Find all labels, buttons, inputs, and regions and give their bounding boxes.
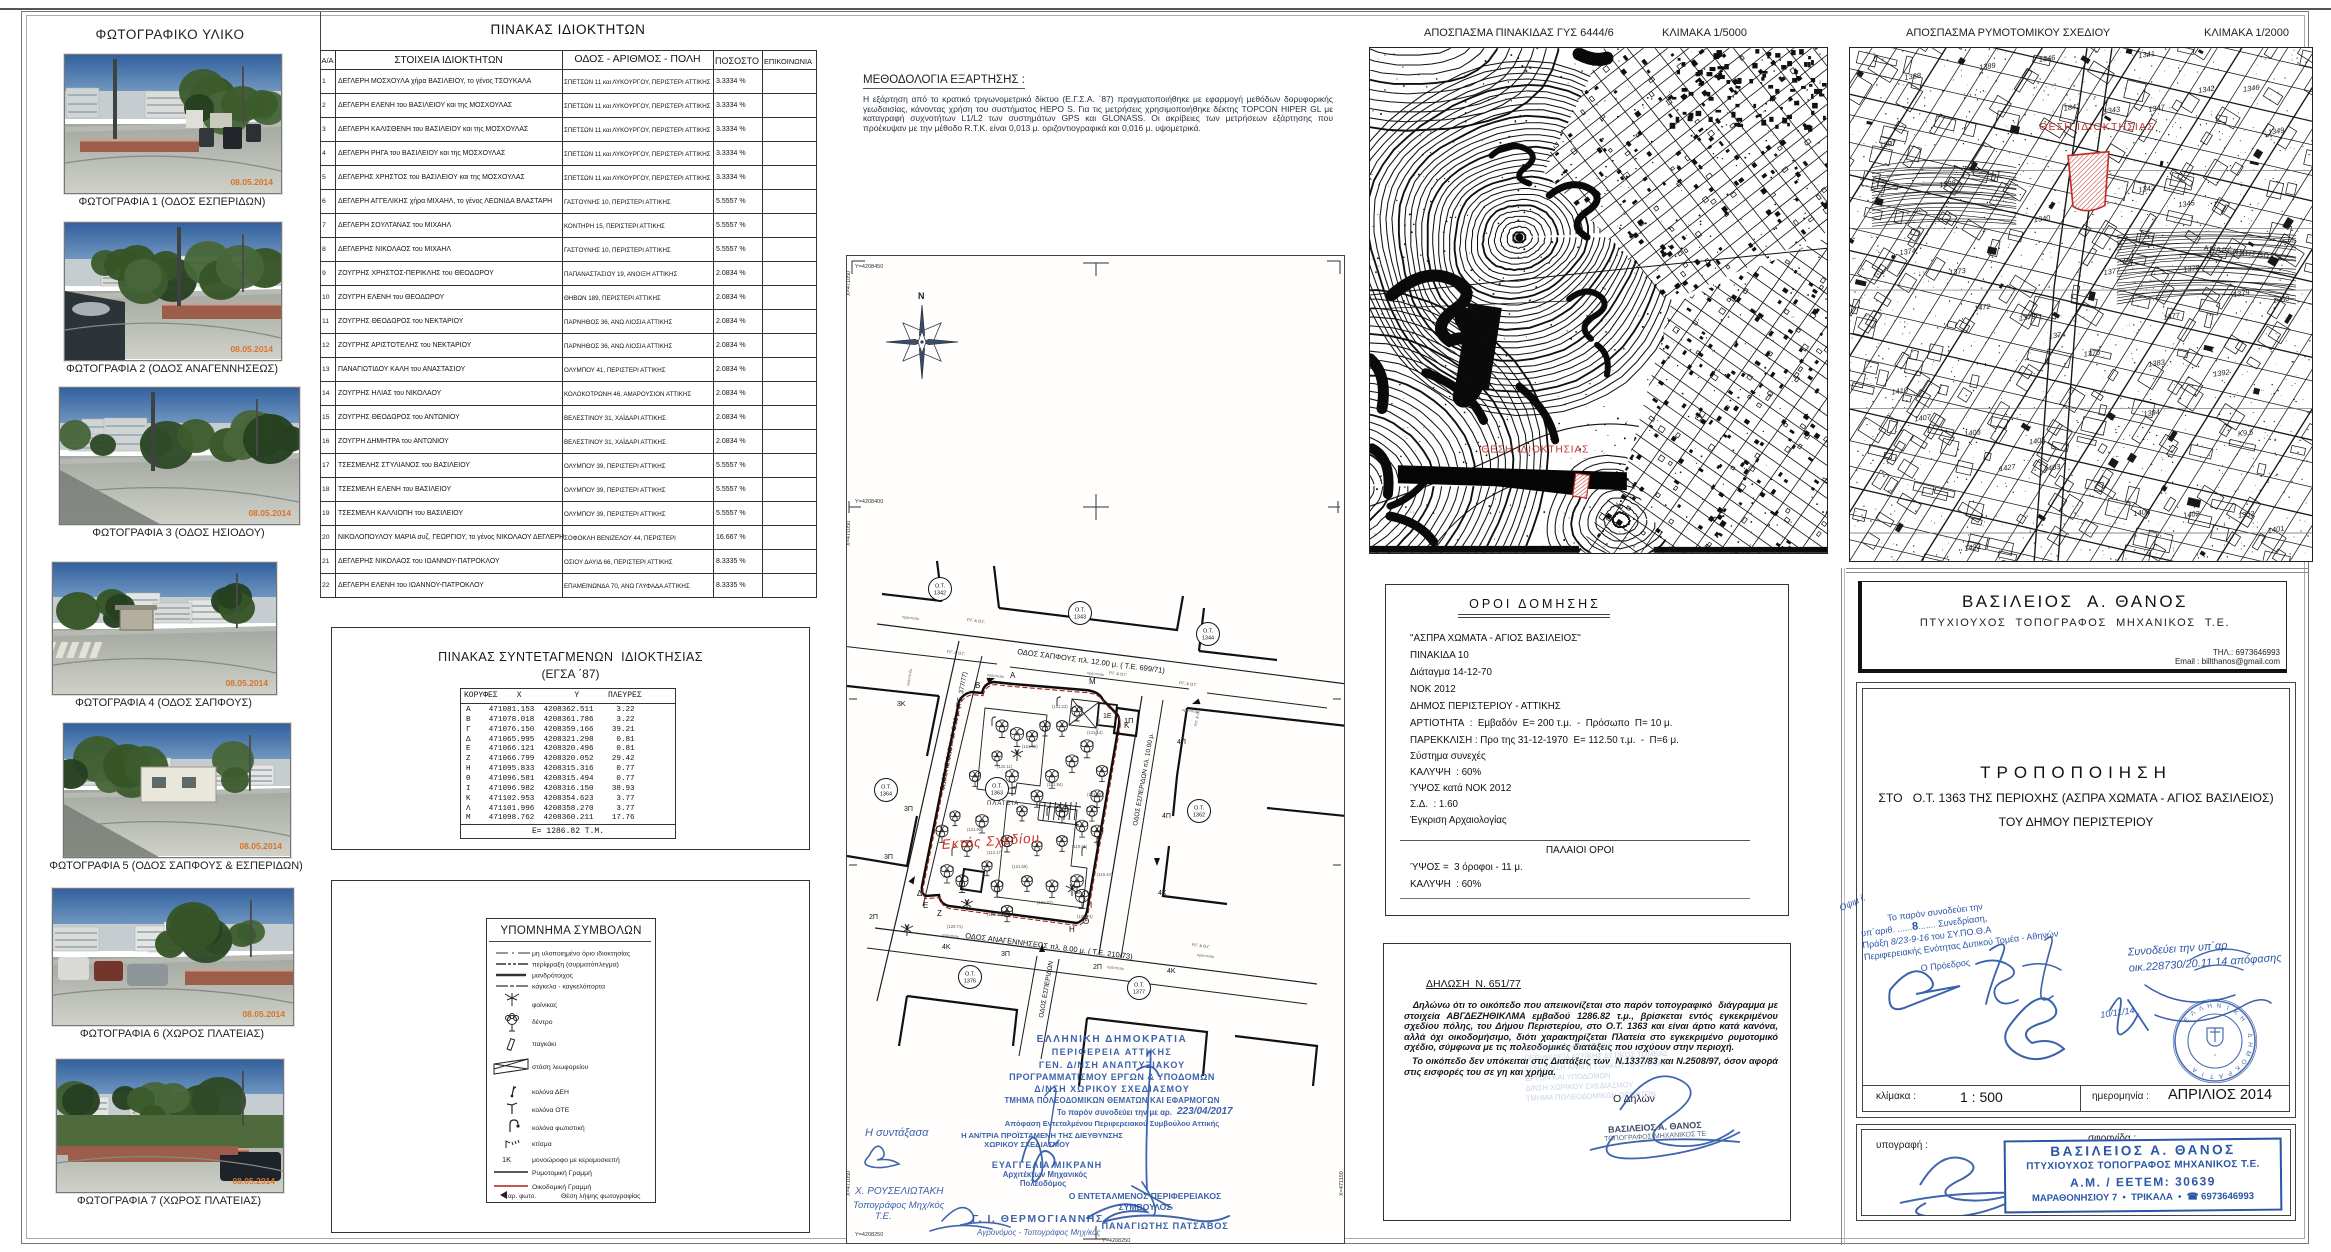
svg-text:1402: 1402 <box>2183 509 2202 520</box>
svg-text:1Κ: 1Κ <box>502 1155 511 1164</box>
svg-text:Ο.Τ.: Ο.Τ. <box>935 584 946 590</box>
svg-text:1364: 1364 <box>880 792 892 798</box>
svg-text:2Π: 2Π <box>869 914 878 921</box>
svg-text:κολόνα ΔΕΗ: κολόνα ΔΕΗ <box>532 1088 569 1096</box>
svg-text:Η: Η <box>1069 925 1075 934</box>
svg-text:1342: 1342 <box>934 591 946 597</box>
svg-text:1377: 1377 <box>1133 990 1145 996</box>
svg-text:1374: 1374 <box>2048 330 2066 341</box>
svg-text:Ρ.Γ. & Ο.Γ.: Ρ.Γ. & Ο.Γ. <box>1109 670 1128 677</box>
svg-text:Τοπογράφος Μηχ/κός: Τοπογράφος Μηχ/κός <box>853 1200 945 1211</box>
svg-text:Ρ.Γ. & Ο.Γ.: Ρ.Γ. & Ο.Γ. <box>967 617 986 624</box>
svg-text:1347: 1347 <box>2148 102 2167 113</box>
svg-text:(121.58): (121.58) <box>1012 864 1028 869</box>
svg-text:Κ: Κ <box>2233 1064 2241 1073</box>
svg-text:4Π: 4Π <box>1177 739 1186 746</box>
svg-text:4Π: 4Π <box>1162 813 1171 820</box>
svg-text:1405: 1405 <box>2028 435 2047 446</box>
svg-text:1377: 1377 <box>2163 311 2182 322</box>
svg-text:ΟΔΟΣ ΕΣΠΕΡΙΔΩΝ: ΟΔΟΣ ΕΣΠΕΡΙΔΩΝ <box>1038 960 1055 1018</box>
svg-text:Χ. ΡΟΥΣΕΛΙΩΤΑΚΗ: Χ. ΡΟΥΣΕΛΙΩΤΑΚΗ <box>854 1186 944 1197</box>
svg-text:(119.44): (119.44) <box>1097 872 1113 877</box>
svg-text:(121.22): (121.22) <box>1052 704 1068 709</box>
svg-text:κάγκελα - καγκελόπορτα: κάγκελα - καγκελόπορτα <box>532 983 605 991</box>
svg-text:08.05.2014: 08.05.2014 <box>248 508 291 518</box>
svg-text:ΓΕΝ. Δ/ΝΣΗ ΑΝΑΠΤΥΞΙΑΚΟΥ: ΓΕΝ. Δ/ΝΣΗ ΑΝΑΠΤΥΞΙΑΚΟΥ <box>1039 1060 1185 1070</box>
svg-text:(121.22): (121.22) <box>987 912 1003 917</box>
svg-text:08.05.2014: 08.05.2014 <box>239 841 282 851</box>
svg-text:κράσπεδο: κράσπεδο <box>906 669 913 687</box>
svg-text:(121.09): (121.09) <box>1022 744 1038 749</box>
svg-text:μη υλοποιημένο όριο ιδιοκτησία: μη υλοποιημένο όριο ιδιοκτησίας <box>532 950 631 958</box>
svg-text:X=471150: X=471150 <box>1339 1171 1344 1196</box>
svg-text:Y=4208250: Y=4208250 <box>855 1232 883 1238</box>
svg-text:1380: 1380 <box>2272 294 2291 305</box>
svg-text:Η: Η <box>2207 1003 2213 1011</box>
svg-text:3Κ: 3Κ <box>897 701 906 708</box>
svg-text:μανδρότοιχος: μανδρότοιχος <box>532 972 574 980</box>
svg-text:ΠΡΟΓΡΑΜΜΑΤΙΣΜΟΥ ΕΡΓΩΝ & ΥΠΟΔΟΜ: ΠΡΟΓΡΑΜΜΑΤΙΣΜΟΥ ΕΡΓΩΝ & ΥΠΟΔΟΜΩΝ <box>1009 1072 1215 1082</box>
svg-text:δέντρο: δέντρο <box>532 1018 553 1026</box>
svg-text:1422: 1422 <box>1964 542 1983 553</box>
svg-text:Μ: Μ <box>2244 1050 2252 1058</box>
svg-text:Η: Η <box>2238 1015 2247 1023</box>
svg-text:ΤΜΗΜΑ ΠΟΛΕΟΔΟΜΙΚΩΝ ΘΕΜΑΤΩΝ ΚΑΙ: ΤΜΗΜΑ ΠΟΛΕΟΔΟΜΙΚΩΝ ΘΕΜΑΤΩΝ ΚΑΙ ΕΦΑΡΜΟΓΩΝ <box>1004 1096 1219 1105</box>
svg-text:ΟΔΟΣ ΑΝΑΓΕΝΝΗΣΕΩΣ πλ. 8.00 μ.: ΟΔΟΣ ΑΝΑΓΕΝΝΗΣΕΩΣ πλ. 8.00 μ. ( Τ.Ε. 210… <box>965 931 1134 961</box>
svg-text:1388: 1388 <box>1904 71 1923 82</box>
svg-text:Θέση λήψης φωτογραφίας: Θέση λήψης φωτογραφίας <box>561 1192 641 1200</box>
svg-text:1346: 1346 <box>2242 83 2261 94</box>
svg-text:1392: 1392 <box>2212 367 2231 378</box>
svg-text:Ζ: Ζ <box>937 909 942 918</box>
svg-text:Η ΑΝ/ΤΡΙΑ ΠΡΟΪΣΤΑΜΕΝΗ ΤΗΣ ΔΙΕΥ: Η ΑΝ/ΤΡΙΑ ΠΡΟΪΣΤΑΜΕΝΗ ΤΗΣ ΔΙΕΥΘΥΝΣΗΣ <box>961 1131 1123 1140</box>
svg-text:Το παρόν συνοδεύει την με αρ.: Το παρόν συνοδεύει την με αρ. <box>1057 1108 1172 1117</box>
svg-text:Ι: Ι <box>1090 901 1092 910</box>
svg-text:1343: 1343 <box>2103 104 2122 115</box>
svg-text:1Ε: 1Ε <box>1103 713 1112 720</box>
svg-text:1377: 1377 <box>2103 266 2122 277</box>
svg-text:Ο.Τ.: Ο.Τ. <box>1075 608 1086 614</box>
svg-text:1400: 1400 <box>2133 507 2152 518</box>
svg-text:Ι: Ι <box>2226 1005 2230 1012</box>
svg-text:1403: 1403 <box>1964 427 1983 438</box>
svg-text:Ρ.Γ. & Ο.Γ.: Ρ.Γ. & Ο.Γ. <box>947 649 966 656</box>
svg-text:(120.71): (120.71) <box>947 924 963 929</box>
svg-text:Ρ.Γ. & Ο.Γ.: Ρ.Γ. & Ο.Γ. <box>1192 942 1211 949</box>
svg-text:Πολεοδόμος: Πολεοδόμος <box>1020 1179 1066 1188</box>
svg-text:Ε: Ε <box>923 901 928 910</box>
svg-text:(121.94): (121.94) <box>1047 782 1063 787</box>
svg-text:Ο.Τ.: Ο.Τ. <box>1194 806 1205 812</box>
svg-text:αρ. φωτο.: αρ. φωτο. <box>508 1193 536 1200</box>
svg-text:κολόνα φωτιστική: κολόνα φωτιστική <box>532 1124 585 1132</box>
svg-text:Ο: Ο <box>2239 1057 2248 1065</box>
svg-text:Ρ: Ρ <box>2226 1069 2233 1077</box>
svg-text:1379: 1379 <box>2232 288 2250 299</box>
svg-text:Η συντάξασα: Η συντάξασα <box>865 1127 929 1139</box>
svg-text:Λ: Λ <box>2198 1005 2205 1013</box>
svg-text:1376: 1376 <box>964 979 976 985</box>
svg-text:X=471050: X=471050 <box>847 271 852 296</box>
svg-text:Κ9.5: Κ9.5 <box>2237 427 2254 438</box>
svg-text:Ο.Τ.: Ο.Τ. <box>881 785 892 791</box>
svg-text:N: N <box>918 291 925 301</box>
svg-text:(122.11): (122.11) <box>997 764 1013 769</box>
svg-text:1343: 1343 <box>1074 615 1086 621</box>
svg-text:1345: 1345 <box>2178 198 2197 209</box>
svg-text:(112.17): (112.17) <box>987 850 1003 855</box>
svg-text:1362: 1362 <box>1193 813 1205 819</box>
svg-text:1389: 1389 <box>1978 61 1996 72</box>
svg-text:08.05.2014: 08.05.2014 <box>225 678 268 688</box>
svg-text:1341: 1341 <box>2138 49 2156 60</box>
svg-text:1427: 1427 <box>1998 462 2017 473</box>
svg-text:ΕΥΑΓΓΕΛΙΑ ΜΙΚΡΑΝΗ: ΕΥΑΓΓΕΛΙΑ ΜΙΚΡΑΝΗ <box>992 1160 1102 1170</box>
svg-text:1378: 1378 <box>2183 263 2202 274</box>
svg-text:08.05.2014: 08.05.2014 <box>230 344 273 354</box>
svg-text:223/04/2017: 223/04/2017 <box>1176 1106 1233 1117</box>
svg-text:1472: 1472 <box>1973 302 1992 313</box>
svg-text:περίφραξη (συρματόπλεγμα): περίφραξη (συρματόπλεγμα) <box>532 961 619 969</box>
svg-text:ΠΑΝΑΓΙΩΤΗΣ ΠΑΤΣΑΒΟΣ: ΠΑΝΑΓΙΩΤΗΣ ΠΑΤΣΑΒΟΣ <box>1101 1221 1228 1231</box>
svg-text:παγκάκι: παγκάκι <box>532 1040 557 1048</box>
svg-text:ΠΛΑΤΕΙΑ: ΠΛΑΤΕΙΑ <box>987 801 1019 807</box>
svg-text:Μ: Μ <box>1089 677 1096 686</box>
svg-text:μονοώροφο με κεραμοσκεπή: μονοώροφο με κεραμοσκεπή <box>532 1156 620 1164</box>
svg-text:1344: 1344 <box>1202 636 1214 642</box>
svg-text:Y=4208250: Y=4208250 <box>1102 1238 1130 1243</box>
svg-text:Εκτός Σχεδίου: Εκτός Σχεδίου <box>941 830 1040 852</box>
svg-text:Y=4208450: Y=4208450 <box>855 264 883 270</box>
svg-text:Απόφαση Εντεταλμένου Περιφερει: Απόφαση Εντεταλμένου Περιφερειακού Συμβο… <box>1005 1119 1220 1128</box>
svg-text:φοίνικας: φοίνικας <box>532 1001 558 1009</box>
svg-text:(119.91): (119.91) <box>1072 844 1088 849</box>
svg-text:Η: Η <box>2246 1042 2253 1048</box>
svg-text:1394: 1394 <box>2143 407 2161 418</box>
svg-text:08.05.2014: 08.05.2014 <box>242 1009 285 1019</box>
svg-text:08.05.2014: 08.05.2014 <box>230 177 273 187</box>
svg-text:κράσπεδο: κράσπεδο <box>1197 953 1215 959</box>
svg-text:08.05.2014: 08.05.2014 <box>232 1176 275 1186</box>
svg-text:1407: 1407 <box>1914 412 1933 423</box>
svg-text:3Π: 3Π <box>904 806 913 813</box>
svg-text:Ο.Τ.: Ο.Τ. <box>965 972 976 978</box>
svg-text:Ο.Τ.: Ο.Τ. <box>1203 629 1214 635</box>
svg-text:Β: Β <box>975 681 980 690</box>
svg-text:Αρχιτέκτων Μηχανικός: Αρχιτέκτων Μηχανικός <box>1003 1170 1087 1179</box>
svg-text:κτίσμα: κτίσμα <box>532 1140 552 1148</box>
svg-text:Κ: Κ <box>2232 1009 2240 1018</box>
svg-text:1Π: 1Π <box>1124 716 1134 725</box>
svg-text:1342: 1342 <box>2138 183 2157 194</box>
svg-text:ΕΛΛΗΝΙΚΗ ΔΗΜΟΚΡΑΤΙΑ: ΕΛΛΗΝΙΚΗ ΔΗΜΟΚΡΑΤΙΑ <box>1037 1034 1188 1045</box>
svg-text:κράσπεδο: κράσπεδο <box>902 615 920 621</box>
svg-text:στάση λεωφορείου: στάση λεωφορείου <box>532 1063 589 1071</box>
svg-text:1340: 1340 <box>2033 213 2052 224</box>
svg-text:ΠΕΡΙΦΕΡΕΙΑ ΑΤΤΙΚΗΣ: ΠΕΡΙΦΕΡΕΙΑ ΑΤΤΙΚΗΣ <box>1052 1047 1172 1057</box>
svg-text:(121.90): (121.90) <box>967 827 983 832</box>
svg-text:X=471050: X=471050 <box>847 521 852 546</box>
svg-text:Τ.Ε.: Τ.Ε. <box>875 1211 892 1222</box>
svg-text:1363: 1363 <box>991 791 1003 797</box>
svg-text:Τ: Τ <box>2210 1072 2215 1079</box>
svg-text:(120.74): (120.74) <box>1077 914 1093 919</box>
svg-text:1373: 1373 <box>2018 312 2037 323</box>
svg-text:*: * <box>2214 1054 2216 1060</box>
svg-text:3Π: 3Π <box>1001 951 1010 958</box>
svg-text:Ε: Ε <box>2183 1016 2192 1024</box>
svg-text:1397: 1397 <box>1879 138 1898 149</box>
svg-text:X=471050: X=471050 <box>847 1171 852 1196</box>
svg-text:4Κ: 4Κ <box>1158 890 1167 897</box>
svg-text:1373: 1373 <box>1949 266 1968 277</box>
svg-text:Δ: Δ <box>917 889 923 898</box>
svg-text:Y=4208400: Y=4208400 <box>855 499 883 505</box>
svg-text:ΟΔΟΣ ΕΣΠΕΡΙΔΩΝ πλ. 10.00 μ.: ΟΔΟΣ ΕΣΠΕΡΙΔΩΝ πλ. 10.00 μ. <box>1132 732 1155 826</box>
svg-text:Ο.Τ.: Ο.Τ. <box>1134 983 1145 989</box>
svg-text:Ο.Τ.: Ο.Τ. <box>992 784 1003 790</box>
svg-text:Ρ.Γ. & Ο.Γ.: Ρ.Γ. & Ο.Γ. <box>1179 680 1198 687</box>
svg-text:Α: Α <box>1010 671 1016 680</box>
svg-text:ΘΕΣΗ ΙΔΙΟΚΤΗΣΙΑΣ: ΘΕΣΗ ΙΔΙΟΚΤΗΣΙΑΣ <box>1482 444 1590 455</box>
svg-text:Α: Α <box>2191 1065 2199 1074</box>
svg-text:Ν: Ν <box>2216 1002 2222 1009</box>
svg-text:(121.60): (121.60) <box>1087 792 1103 797</box>
svg-text:ΘΕΣΗ ΙΔΙΟΚΤΗΣΙΑΣ: ΘΕΣΗ ΙΔΙΟΚΤΗΣΙΑΣ <box>2039 122 2155 133</box>
svg-text:κράσπεδο: κράσπεδο <box>1107 965 1125 971</box>
svg-text:Δ/ΝΣΗ ΧΩΡΙΚΟΥ ΣΧΕΔΙΑΣΜΟΥ: Δ/ΝΣΗ ΧΩΡΙΚΟΥ ΣΧΕΔΙΑΣΜΟΥ <box>1034 1084 1189 1094</box>
svg-text:3Π: 3Π <box>884 854 893 861</box>
svg-text:(121.82): (121.82) <box>1037 900 1053 905</box>
svg-text:Ρυμοτομική Γραμμή: Ρυμοτομική Γραμμή <box>532 1170 592 1177</box>
svg-text:Αγρονόμος - Τοπογράφος Μηχ/κός: Αγρονόμος - Τοπογράφος Μηχ/κός <box>976 1228 1101 1237</box>
svg-text:Α: Α <box>2218 1072 2224 1080</box>
svg-text:1374: 1374 <box>1899 246 1917 257</box>
svg-text:4Κ: 4Κ <box>942 944 951 951</box>
svg-text:Λ: Λ <box>2189 1009 2197 1018</box>
svg-text:Οικοδομική Γραμμή: Οικοδομική Γραμμή <box>532 1184 591 1191</box>
svg-text:2Π: 2Π <box>1093 964 1102 971</box>
svg-text:κολόνα ΟΤΕ: κολόνα ΟΤΕ <box>532 1106 570 1114</box>
svg-text:Δ: Δ <box>2246 1033 2254 1039</box>
svg-text:Ι: Ι <box>2201 1070 2205 1077</box>
svg-text:4Κ: 4Κ <box>1167 968 1176 975</box>
